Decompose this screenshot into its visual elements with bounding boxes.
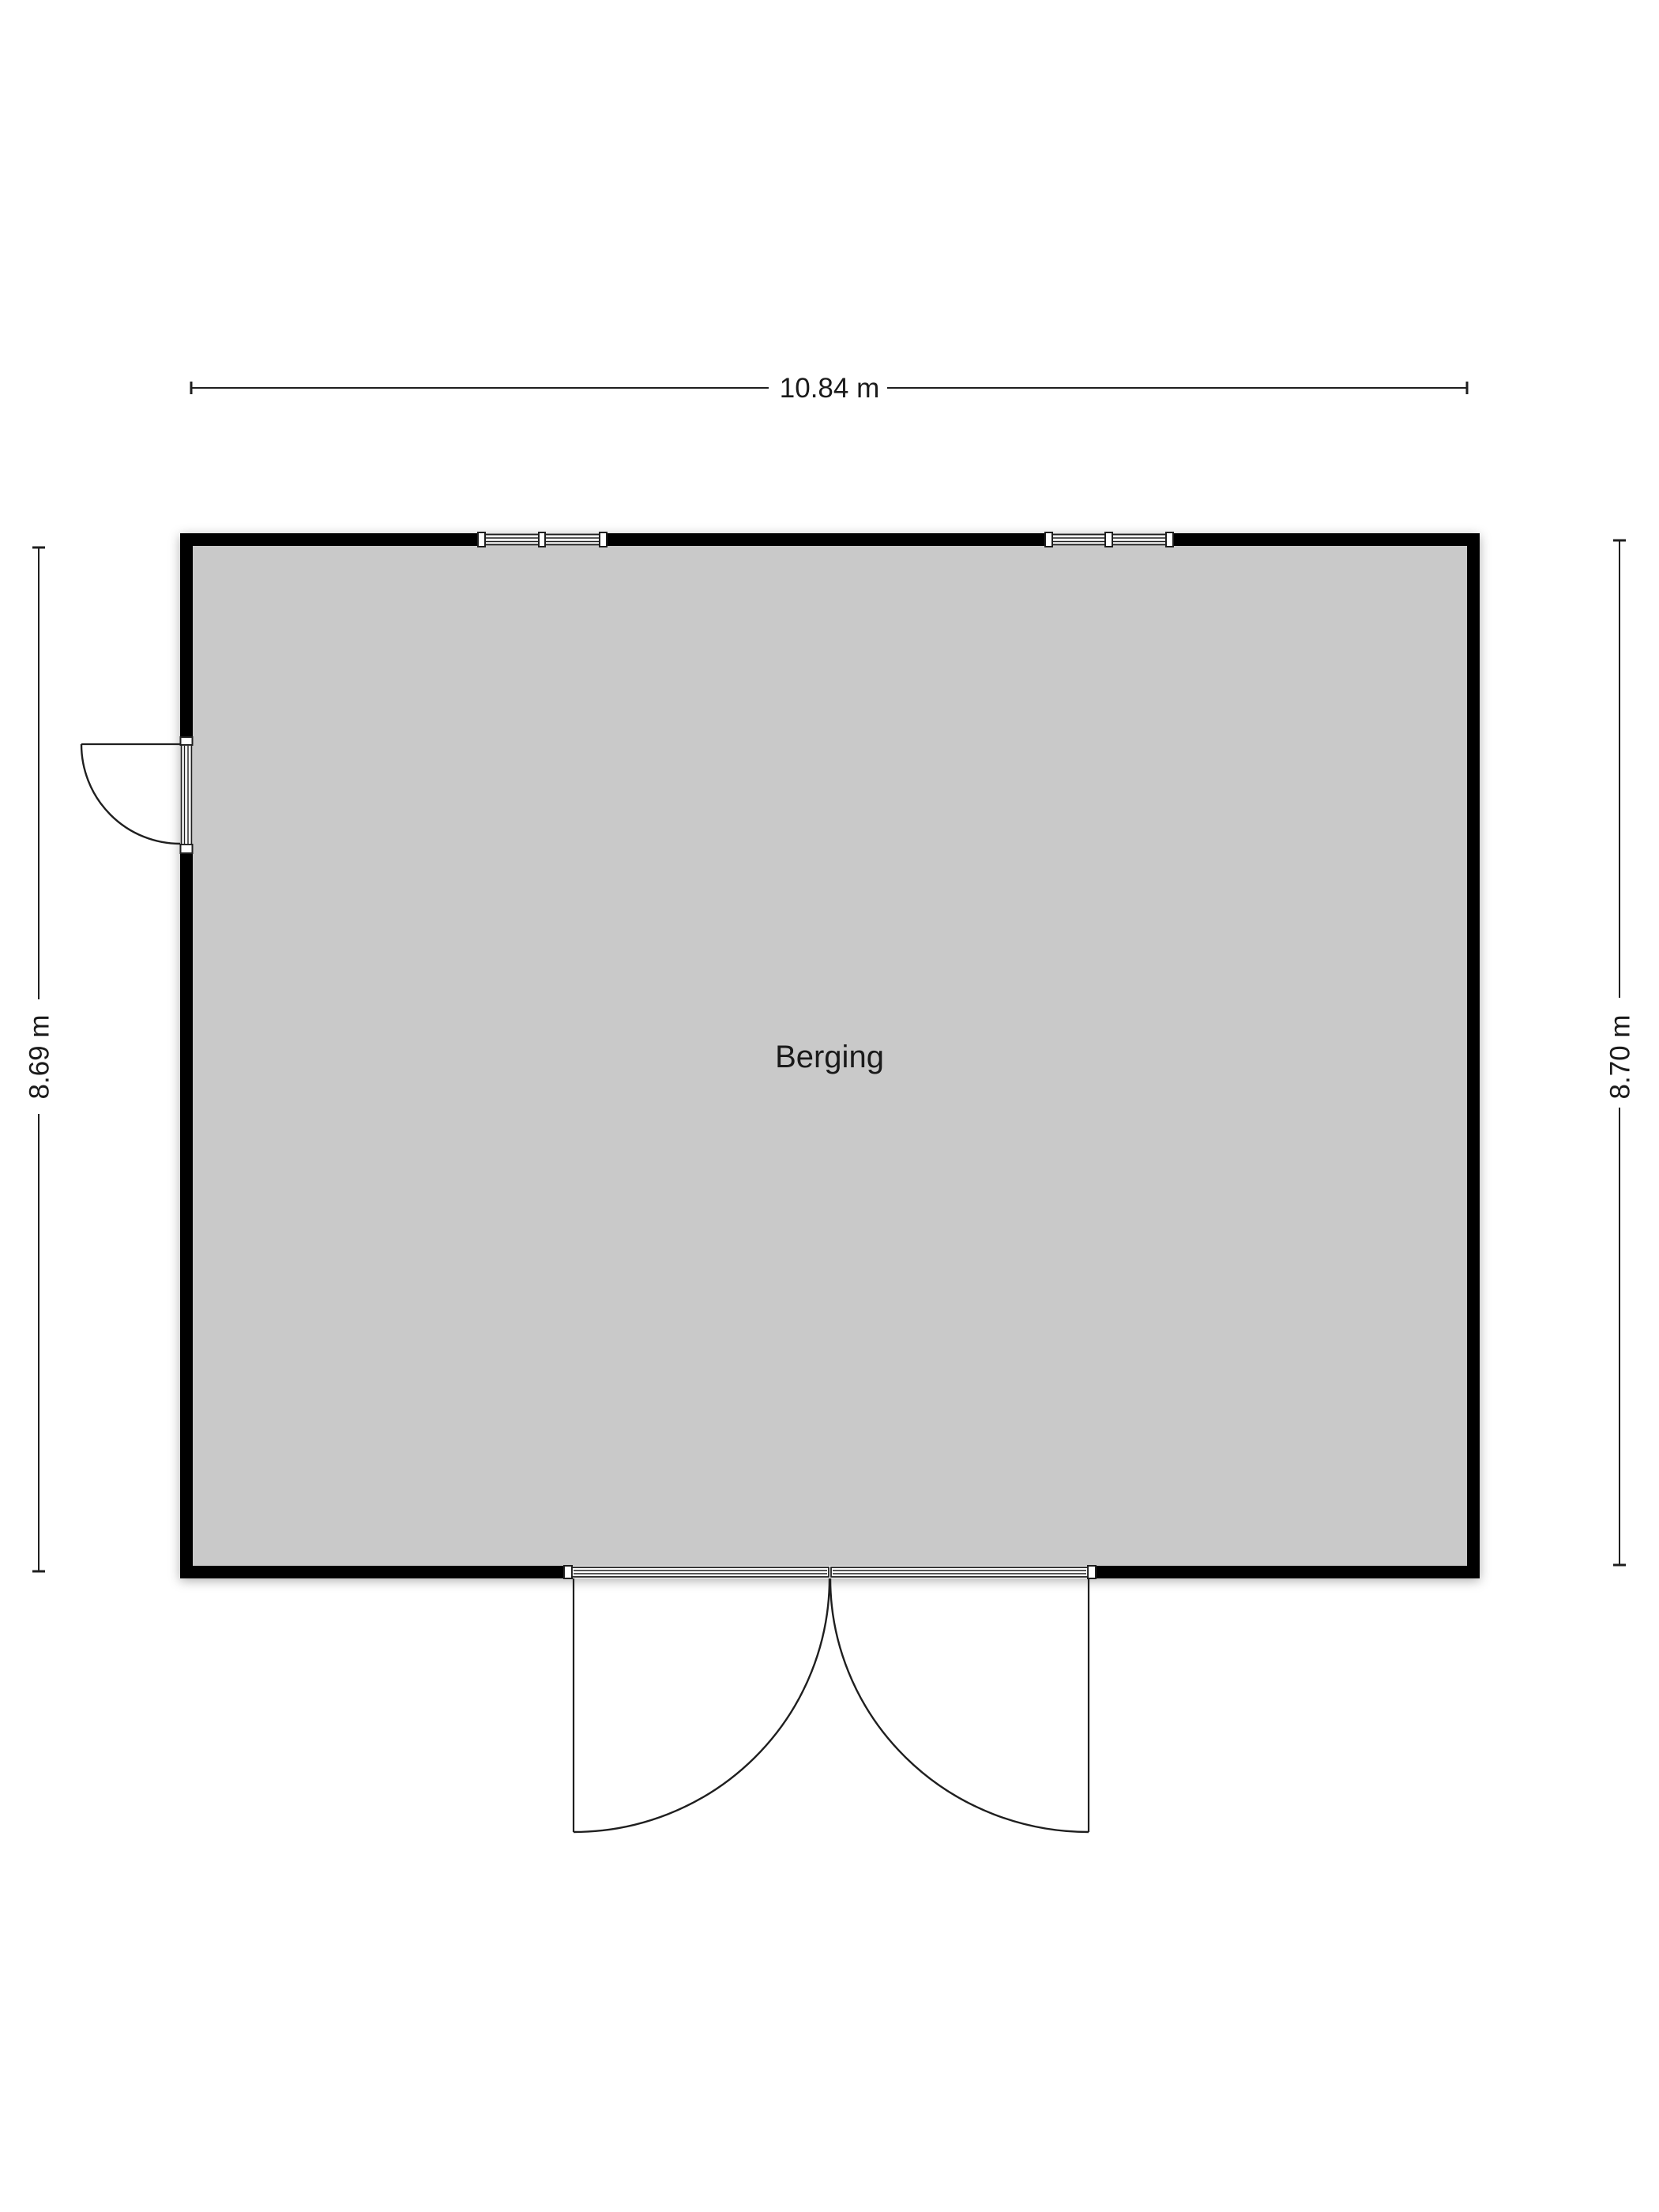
door-swing-arc [81,744,180,844]
window-jamb [600,532,607,547]
door-south-double [564,1566,1096,1832]
floor-plan-page: 10.84 m 8.69 m 8.70 m [0,0,1659,2212]
door-jamb [181,737,193,745]
window-mullion [539,532,545,547]
room-label: Berging [775,1040,884,1074]
door-west [81,737,193,853]
dimension-right: 8.70 m [1604,540,1635,1565]
door-leaf-closed-left [572,1567,829,1577]
window-pane [545,535,600,545]
window-north-east [1045,532,1173,547]
door-jamb [1088,1566,1096,1578]
window-jamb [1166,532,1173,547]
door-jamb [181,845,193,853]
dimension-top: 10.84 m [191,373,1467,404]
door-leaf-closed [182,745,192,845]
floor-plan: 10.84 m 8.69 m 8.70 m [0,0,1659,2212]
window-north-west [478,532,607,547]
window-pane [485,535,539,545]
window-pane [1112,535,1166,545]
window-jamb [478,532,485,547]
window-jamb [1045,532,1052,547]
door-leaf-closed-right [831,1567,1088,1577]
window-mullion [1105,532,1112,547]
dimension-label-left: 8.69 m [24,1015,55,1100]
dimension-label-right: 8.70 m [1604,1015,1635,1100]
window-pane [1052,535,1105,545]
door-jamb [564,1566,572,1578]
door-swing-arc-right [830,1578,1089,1832]
dimension-left: 8.69 m [24,547,55,1571]
dimension-label-top: 10.84 m [780,373,879,404]
door-swing-arc-left [574,1578,829,1832]
